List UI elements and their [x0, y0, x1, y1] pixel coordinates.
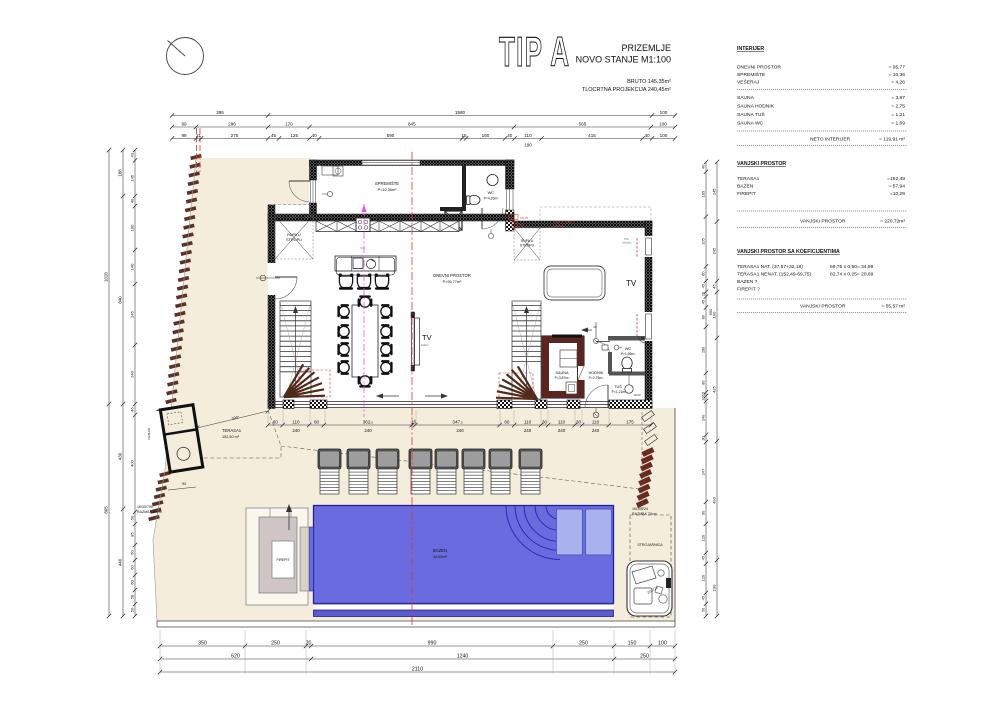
svg-text:=10,29: =10,29: [890, 191, 905, 197]
svg-text:440: 440: [118, 558, 123, 566]
svg-text:620: 620: [231, 654, 240, 660]
svg-text:1240: 1240: [457, 654, 469, 660]
svg-text:INTERIJER: INTERIJER: [737, 46, 764, 52]
svg-text:845: 845: [408, 122, 416, 127]
svg-text:HODNIK: HODNIK: [589, 371, 604, 375]
svg-text:490: 490: [712, 496, 717, 503]
svg-text:SAUNA: SAUNA: [737, 95, 755, 101]
svg-text:45: 45: [712, 284, 717, 289]
svg-text:= 119,91 m²: = 119,91 m²: [879, 137, 905, 143]
svg-text:240: 240: [364, 428, 372, 433]
svg-text:60: 60: [130, 550, 135, 555]
svg-text:SAUNA TUŠ: SAUNA TUŠ: [737, 111, 765, 118]
svg-text:120: 120: [701, 574, 706, 581]
svg-text:205: 205: [701, 238, 706, 245]
svg-text:FIREPIT: FIREPIT: [277, 558, 290, 562]
svg-text:247: 247: [701, 469, 706, 476]
svg-text:TV: TV: [626, 279, 637, 288]
svg-text:NETO INTERIJER: NETO INTERIJER: [810, 137, 851, 143]
svg-text:690: 690: [708, 308, 713, 315]
svg-text:otklopivo: otklopivo: [622, 242, 632, 245]
svg-text:151.45: 151.45: [520, 216, 528, 220]
svg-text:110: 110: [558, 420, 566, 425]
svg-text:CAMILIUS: CAMILIUS: [147, 427, 151, 440]
svg-text:250: 250: [579, 641, 588, 647]
svg-text:245: 245: [712, 188, 717, 195]
svg-text:VANJSKI PROSTOR: VANJSKI PROSTOR: [800, 219, 846, 225]
svg-text:145: 145: [130, 174, 135, 181]
svg-text:60: 60: [130, 565, 135, 570]
svg-text:P=10,36m²: P=10,36m²: [378, 188, 397, 192]
svg-text:120: 120: [701, 534, 706, 541]
svg-text:TERASA1: TERASA1: [737, 176, 760, 182]
svg-text:250: 250: [271, 641, 280, 647]
svg-text:240: 240: [130, 370, 135, 377]
svg-text:WC: WC: [625, 347, 632, 351]
svg-text:TERASA1 NAT. (37,57+32,18): TERASA1 NAT. (37,57+32,18): [737, 264, 803, 270]
svg-text:VANJSKI PROSTOR: VANJSKI PROSTOR: [800, 304, 846, 310]
svg-text:175: 175: [626, 420, 634, 425]
svg-text:99: 99: [181, 122, 187, 127]
svg-text:PRIZEMLJE: PRIZEMLJE: [621, 43, 671, 53]
svg-text:245: 245: [712, 247, 717, 254]
svg-text:45: 45: [701, 284, 706, 288]
svg-text:RUPA U: RUPA U: [287, 233, 301, 237]
svg-text:110: 110: [524, 420, 532, 425]
svg-text:45: 45: [701, 556, 706, 560]
svg-text:45: 45: [701, 300, 706, 304]
svg-text:865: 865: [104, 506, 109, 514]
svg-text:15: 15: [411, 420, 417, 425]
svg-text:= 57,94: = 57,94: [889, 184, 906, 190]
svg-text:590: 590: [387, 133, 395, 138]
svg-text:250: 250: [640, 654, 649, 660]
svg-text:BAZEN ?: BAZEN ?: [737, 279, 758, 285]
svg-text:DNEVNI PROSTOR: DNEVNI PROSTOR: [433, 273, 471, 278]
svg-text:FIREPIT ?: FIREPIT ?: [737, 287, 760, 293]
svg-text:170: 170: [285, 122, 293, 127]
svg-text:NOVO STANJE M1:100: NOVO STANJE M1:100: [576, 55, 671, 65]
svg-text:40: 40: [130, 198, 135, 203]
svg-text:150: 150: [628, 641, 637, 647]
svg-text:BAZEN: BAZEN: [737, 184, 754, 190]
svg-text:20: 20: [306, 641, 312, 647]
svg-text:40: 40: [507, 133, 513, 138]
svg-text:= 1,21: = 1,21: [891, 112, 905, 118]
svg-text:SAUNA WC: SAUNA WC: [737, 121, 764, 127]
svg-text:UP: UP: [593, 325, 597, 329]
svg-text:185: 185: [701, 191, 706, 198]
svg-text:140: 140: [130, 263, 135, 270]
svg-text:= 1,69: = 1,69: [891, 121, 905, 127]
svg-text:WC: WC: [488, 190, 495, 195]
svg-text:99: 99: [181, 133, 187, 138]
svg-text:SPREMIŠTE: SPREMIŠTE: [375, 181, 399, 186]
svg-text:362,5: 362,5: [363, 420, 374, 425]
svg-text:TERASA1 NENAT. (152,49-69,75): TERASA1 NENAT. (152,49-69,75): [737, 272, 811, 278]
svg-text:240: 240: [456, 428, 464, 433]
svg-text:16/30/790: 16/30/790: [137, 505, 153, 509]
svg-text:NADVOJ: NADVOJ: [553, 224, 564, 228]
svg-text:40,60m²: 40,60m²: [433, 555, 448, 559]
svg-text:100: 100: [660, 133, 668, 138]
svg-text:STROJARNICA: STROJARNICA: [637, 543, 663, 547]
svg-text:240: 240: [592, 428, 600, 433]
svg-text:45: 45: [701, 596, 706, 600]
svg-text:STROPU: STROPU: [520, 244, 535, 248]
svg-text:90: 90: [182, 482, 186, 486]
svg-text:100: 100: [658, 641, 667, 647]
svg-text:60: 60: [314, 420, 320, 425]
svg-text:SAUNA HODNIK: SAUNA HODNIK: [737, 104, 775, 110]
svg-text:40: 40: [312, 133, 318, 138]
svg-text:240: 240: [558, 428, 566, 433]
svg-text:RUPA U: RUPA U: [521, 239, 534, 243]
svg-text:425: 425: [712, 385, 717, 392]
svg-text:125: 125: [290, 133, 298, 138]
svg-text:1580: 1580: [455, 110, 466, 115]
svg-text:2110: 2110: [412, 667, 423, 673]
svg-text:P=3,87m²: P=3,87m²: [555, 376, 571, 380]
svg-text:400: 400: [130, 459, 135, 466]
svg-text:=152,49: =152,49: [887, 176, 905, 182]
svg-text:= 55,57 m²: = 55,57 m²: [881, 304, 905, 310]
svg-text:240: 240: [292, 428, 300, 433]
svg-text:45: 45: [271, 133, 277, 138]
svg-text:TLOCRTNA PROJEKCIJA 240,45m²: TLOCRTNA PROJEKCIJA 240,45m²: [582, 87, 671, 93]
svg-text:100: 100: [660, 110, 668, 115]
svg-text:21: 21: [196, 133, 202, 138]
svg-text:1028: 1028: [104, 272, 109, 282]
svg-text:110: 110: [592, 420, 600, 425]
svg-text:85: 85: [130, 532, 135, 537]
svg-text:STROPU: STROPU: [286, 238, 302, 242]
svg-text:50: 50: [130, 515, 135, 520]
svg-text:110cm: 110cm: [421, 343, 429, 347]
svg-text:16/30/724: 16/30/724: [632, 507, 648, 511]
svg-text:= 95,77: = 95,77: [889, 65, 906, 71]
svg-text:= 10,36: = 10,36: [889, 72, 906, 78]
svg-text:190: 190: [524, 143, 532, 148]
svg-text:990: 990: [428, 641, 437, 647]
svg-text:PVA: PVA: [519, 223, 524, 227]
svg-text:90×90: 90×90: [634, 394, 641, 397]
svg-text:110: 110: [524, 133, 532, 138]
svg-text:= 3,87: = 3,87: [891, 95, 905, 101]
svg-text:30: 30: [576, 420, 582, 425]
svg-text:415: 415: [588, 133, 596, 138]
svg-text:TUŠ: TUŠ: [614, 384, 622, 389]
svg-text:TERASA1: TERASA1: [222, 428, 242, 433]
svg-text:DNEVNI PROSTOR: DNEVNI PROSTOR: [737, 65, 781, 71]
svg-text:VEŠERAJ: VEŠERAJ: [737, 79, 760, 86]
svg-text:275: 275: [231, 133, 239, 138]
svg-text:430: 430: [118, 452, 123, 460]
svg-text:188: 188: [118, 169, 123, 177]
svg-text:TV: TV: [422, 333, 432, 342]
svg-text:RAZMAK 20cm: RAZMAK 20cm: [632, 512, 657, 516]
svg-text:RAZMAK 20cm: RAZMAK 20cm: [137, 510, 162, 514]
svg-text:58: 58: [130, 594, 135, 599]
svg-text:BRUTO 145,35m²: BRUTO 145,35m²: [627, 79, 671, 85]
svg-text:60: 60: [273, 420, 279, 425]
svg-text:565: 565: [579, 122, 587, 127]
svg-text:FIREPIT: FIREPIT: [737, 191, 756, 197]
svg-text:P=2,75m²: P=2,75m²: [589, 376, 605, 380]
svg-text:180: 180: [130, 224, 135, 231]
svg-text:BAZEN: BAZEN: [433, 548, 447, 553]
svg-text:230: 230: [712, 584, 717, 591]
svg-text:VANJSKI PROSTOR: VANJSKI PROSTOR: [737, 161, 786, 167]
svg-text:50: 50: [130, 607, 135, 612]
svg-text:60: 60: [504, 420, 510, 425]
svg-text:245: 245: [130, 310, 135, 317]
svg-text:100: 100: [659, 122, 667, 127]
svg-text:152,50 m²: 152,50 m²: [222, 435, 240, 439]
svg-text:350: 350: [198, 641, 207, 647]
svg-text:140: 140: [701, 414, 706, 421]
svg-text:P=1,69m²: P=1,69m²: [621, 352, 637, 356]
svg-text:110: 110: [292, 420, 300, 425]
svg-text:P=4,26m²: P=4,26m²: [484, 197, 500, 201]
svg-text:= 220,72m²: = 220,72m²: [880, 219, 905, 225]
svg-text:30: 30: [542, 420, 548, 425]
svg-text:60: 60: [130, 580, 135, 585]
svg-text:82,74 x 0,25= 20,69: 82,74 x 0,25= 20,69: [830, 272, 874, 278]
svg-text:45: 45: [130, 407, 135, 412]
svg-text:15: 15: [461, 133, 467, 138]
svg-text:= 4,26: = 4,26: [891, 80, 905, 86]
svg-text:= 2,75: = 2,75: [891, 104, 905, 110]
svg-text:296: 296: [228, 122, 236, 127]
svg-text:395: 395: [216, 110, 224, 115]
svg-text:160: 160: [482, 133, 490, 138]
svg-text:240: 240: [524, 428, 532, 433]
svg-text:43: 43: [130, 152, 135, 157]
svg-text:300: 300: [360, 246, 365, 250]
svg-text:69,75 x 0,50= 34,88: 69,75 x 0,50= 34,88: [830, 264, 874, 270]
svg-text:40: 40: [645, 133, 651, 138]
svg-text:VANJSKI PROSTOR SA KOEFICIJENT: VANJSKI PROSTOR SA KOEFICIJENTIMA: [737, 249, 840, 255]
svg-text:SPREMIŠTE: SPREMIŠTE: [737, 71, 766, 78]
svg-text:840: 840: [118, 296, 123, 304]
svg-text:347,5: 347,5: [452, 420, 463, 425]
svg-text:TIP A: TIP A: [499, 29, 570, 76]
svg-text:15: 15: [701, 392, 706, 396]
svg-text:P=95,77m²: P=95,77m²: [443, 280, 462, 284]
svg-text:190: 190: [701, 346, 706, 353]
svg-text:SAUNA: SAUNA: [555, 371, 569, 375]
